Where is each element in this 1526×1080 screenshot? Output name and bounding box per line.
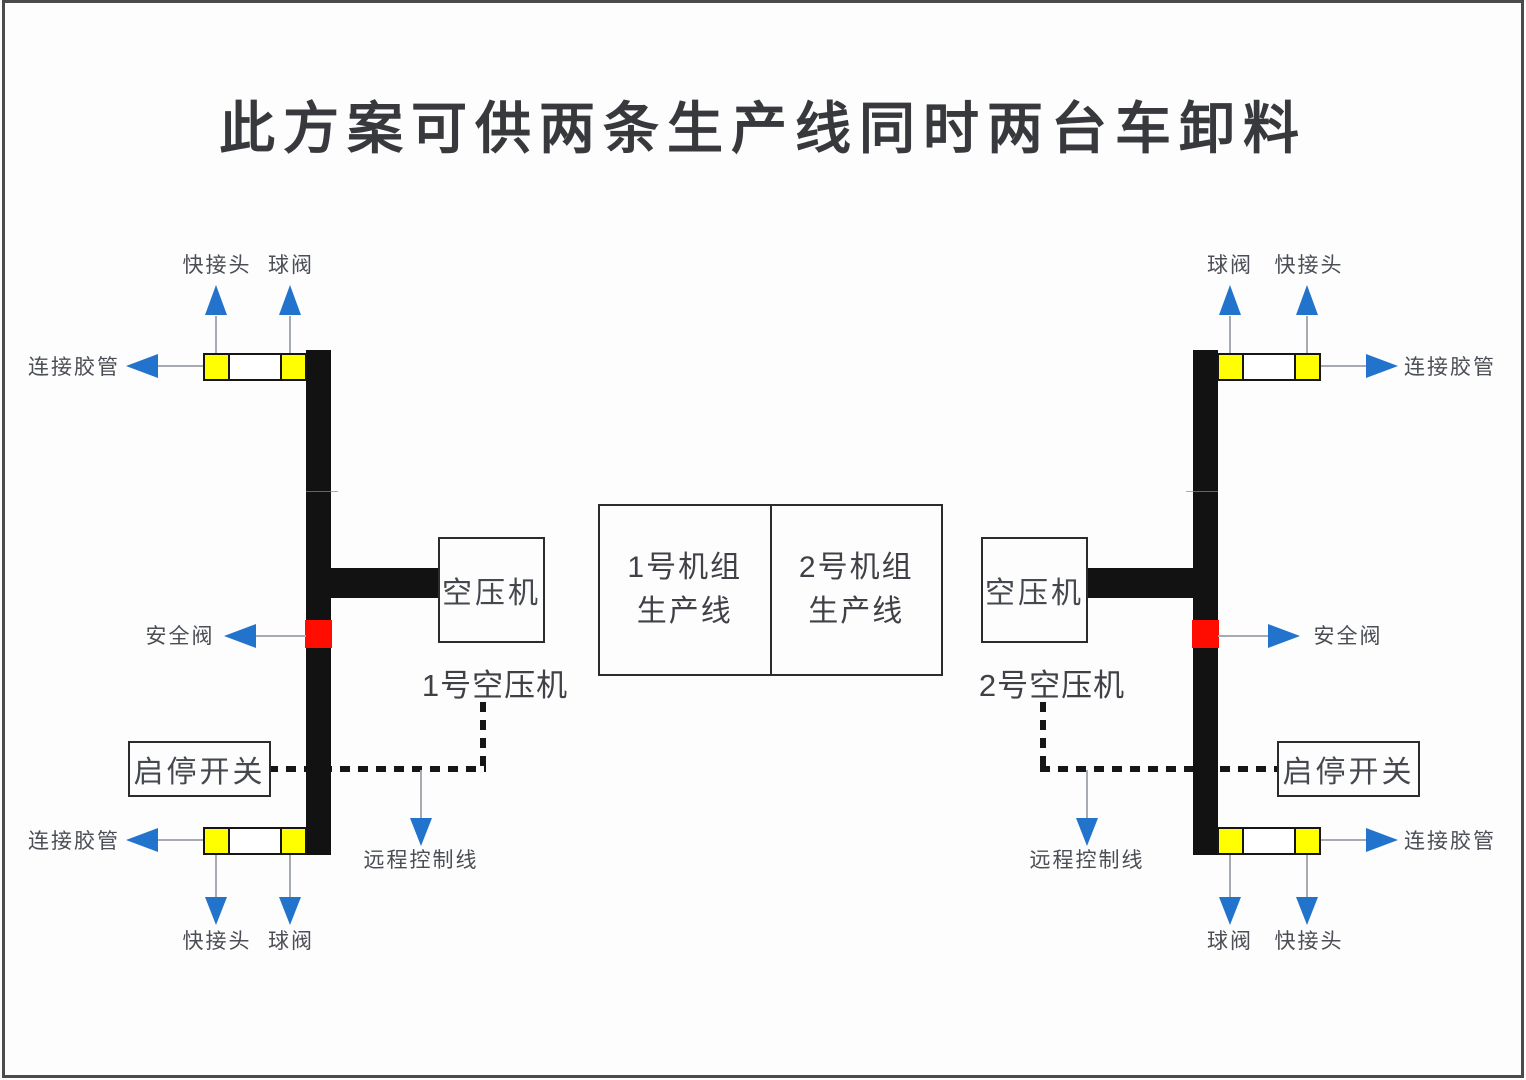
left-compressor-name: 1号空压机 [409, 660, 581, 705]
left-top-hose-label: 连接胶管 [24, 356, 124, 379]
left-bottom-quick-connector-stem [215, 855, 217, 898]
right-bottom-quick-connector-arrow-icon [1296, 897, 1318, 925]
right-main-pipe [1193, 350, 1218, 855]
right-branch-pipe [1086, 568, 1193, 598]
right-bottom-ball-valve-block [1217, 827, 1244, 855]
right-switch-box: 启停开关 [1277, 741, 1420, 797]
right-top-ball-valve-stem [1229, 316, 1231, 353]
diagram-canvas: 此方案可供两条生产线同时两台车卸料 安全阀 空压机 1号空压机 启停开关 远程控… [0, 0, 1526, 1080]
left-top-connector-white-block [228, 353, 282, 381]
left-top-quick-connector-arrow-icon [205, 285, 227, 315]
right-bottom-hose-label: 连接胶管 [1400, 830, 1500, 853]
left-bottom-ball-valve-arrow-icon [279, 897, 301, 925]
left-top-hose-arrow-icon [126, 354, 158, 378]
left-bottom-hose-label: 连接胶管 [24, 830, 124, 853]
left-top-ball-valve-label: 球阀 [262, 254, 320, 277]
right-top-ball-valve-label: 球阀 [1201, 254, 1259, 277]
right-compressor-box: 空压机 [981, 537, 1088, 643]
right-top-hose-arrow-icon [1366, 354, 1398, 378]
right-top-quick-connector-stem [1306, 316, 1308, 353]
right-top-quick-connector-label: 快接头 [1262, 254, 1356, 277]
right-bottom-ball-valve-arrow-icon [1219, 897, 1241, 925]
right-remote-line-stem [1086, 770, 1088, 818]
left-pipe-joint-seam [306, 491, 338, 492]
right-bottom-quick-connector-stem [1306, 855, 1308, 898]
right-bottom-ball-valve-label: 球阀 [1201, 930, 1259, 953]
left-bottom-ball-valve-label: 球阀 [262, 930, 320, 953]
right-bottom-hose-arrow-icon [1366, 828, 1398, 852]
left-safety-valve-block [305, 620, 332, 648]
left-branch-pipe [331, 568, 438, 598]
left-remote-line-label: 远程控制线 [336, 849, 506, 872]
right-remote-arrow-down-icon [1076, 818, 1098, 846]
left-remote-line-stem [420, 770, 422, 818]
left-top-quick-connector-block [203, 353, 230, 381]
right-safety-valve-arrow-icon [1268, 624, 1300, 648]
left-bottom-ball-valve-stem [289, 855, 291, 898]
left-top-ball-valve-stem [289, 316, 291, 353]
right-top-ball-valve-block [1217, 353, 1244, 381]
left-bottom-connector-white-block [228, 827, 282, 855]
right-safety-valve-block [1192, 620, 1219, 648]
right-compressor-name: 2号空压机 [966, 660, 1138, 705]
right-bottom-quick-connector-block [1294, 827, 1321, 855]
right-top-ball-valve-arrow-icon [1219, 285, 1241, 315]
left-remote-dashed-vertical [480, 702, 486, 768]
right-remote-line-label: 远程控制线 [1002, 849, 1172, 872]
left-safety-valve-line [254, 635, 306, 637]
left-top-quick-connector-stem [215, 316, 217, 353]
production-line-2-type: 生产线 [808, 590, 904, 634]
left-top-quick-connector-label: 快接头 [170, 254, 264, 277]
right-switch-box-label: 启停开关 [1283, 747, 1415, 791]
right-bottom-ball-valve-stem [1229, 855, 1231, 898]
left-bottom-ball-valve-block [280, 827, 307, 855]
right-bottom-connector-white-block [1242, 827, 1296, 855]
production-line-1-name: 1号机组 [627, 546, 742, 590]
left-top-ball-valve-block [280, 353, 307, 381]
left-compressor-box: 空压机 [438, 537, 545, 643]
production-line-1-cell: 1号机组 生产线 [600, 506, 772, 674]
right-bottom-hose-line [1321, 839, 1368, 841]
left-safety-valve-arrow-icon [224, 624, 256, 648]
left-bottom-quick-connector-label: 快接头 [170, 930, 264, 953]
page-title: 此方案可供两条生产线同时两台车卸料 [0, 84, 1526, 165]
right-top-hose-label: 连接胶管 [1400, 356, 1500, 379]
left-bottom-hose-arrow-icon [126, 828, 158, 852]
left-switch-box: 启停开关 [128, 741, 271, 797]
left-remote-arrow-down-icon [410, 818, 432, 846]
production-lines-box: 1号机组 生产线 2号机组 生产线 [598, 504, 943, 676]
right-safety-valve-label: 安全阀 [1306, 625, 1390, 648]
left-bottom-hose-line [156, 839, 203, 841]
left-remote-dashed-horizontal [268, 766, 486, 772]
right-top-connector-white-block [1242, 353, 1296, 381]
production-line-1-type: 生产线 [637, 590, 733, 634]
right-top-quick-connector-arrow-icon [1296, 285, 1318, 315]
right-pipe-joint-seam [1186, 491, 1218, 492]
left-safety-valve-label: 安全阀 [138, 625, 222, 648]
left-main-pipe [306, 350, 331, 855]
left-top-ball-valve-arrow-icon [279, 285, 301, 315]
right-top-hose-line [1321, 365, 1368, 367]
right-remote-dashed-vertical [1040, 702, 1046, 768]
left-switch-box-label: 启停开关 [134, 747, 266, 791]
left-top-hose-line [156, 365, 203, 367]
left-bottom-quick-connector-arrow-icon [205, 897, 227, 925]
right-top-quick-connector-block [1294, 353, 1321, 381]
production-line-2-cell: 2号机组 生产线 [772, 506, 942, 674]
right-bottom-quick-connector-label: 快接头 [1262, 930, 1356, 953]
right-remote-dashed-horizontal [1040, 766, 1278, 772]
right-safety-valve-line [1218, 635, 1270, 637]
left-compressor-box-label: 空压机 [442, 568, 541, 612]
left-bottom-quick-connector-block [203, 827, 230, 855]
right-compressor-box-label: 空压机 [985, 568, 1084, 612]
production-line-2-name: 2号机组 [799, 546, 914, 590]
